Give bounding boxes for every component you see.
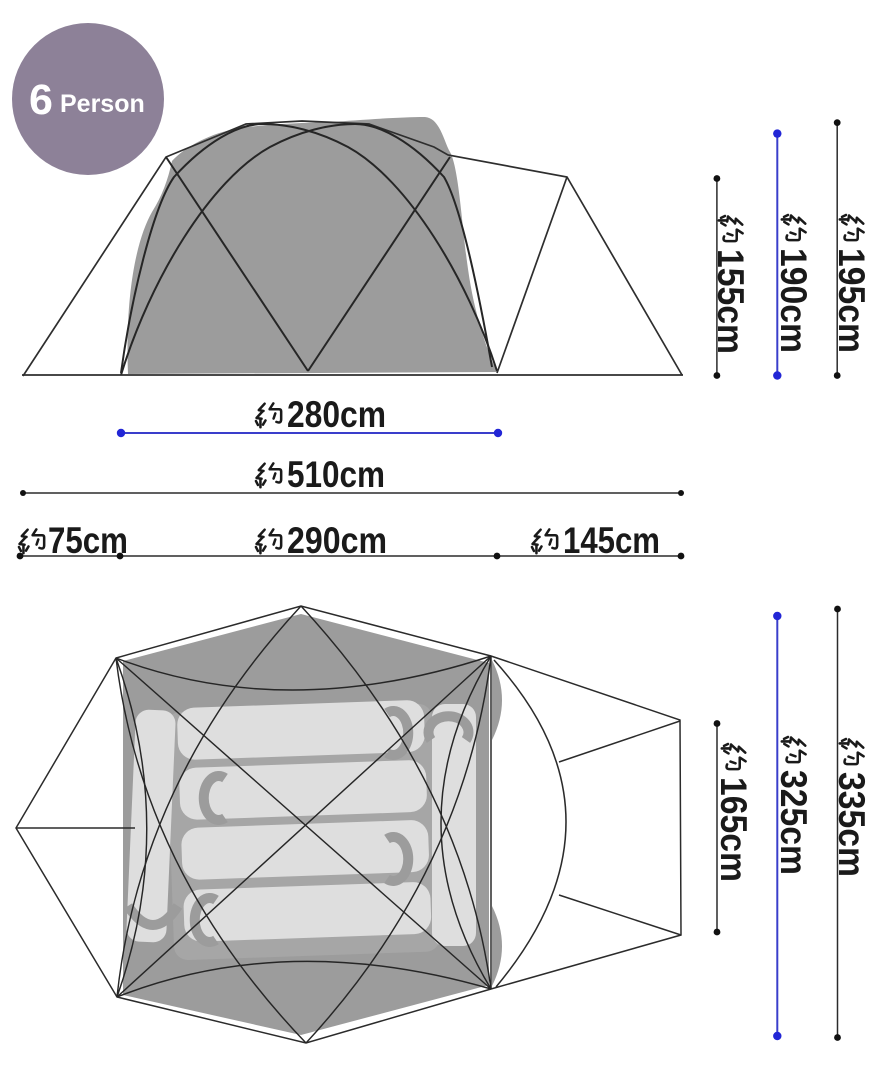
svg-text:335cm: 335cm [831, 772, 872, 877]
svg-text:510cm: 510cm [287, 454, 385, 495]
svg-text:75cm: 75cm [48, 520, 128, 561]
svg-text:145cm: 145cm [563, 520, 660, 561]
svg-text:Person: Person [60, 90, 145, 118]
svg-text:190cm: 190cm [773, 248, 814, 353]
svg-text:290cm: 290cm [287, 520, 387, 561]
svg-text:165cm: 165cm [713, 777, 754, 882]
svg-text:155cm: 155cm [710, 249, 751, 354]
svg-text:325cm: 325cm [773, 770, 814, 875]
svg-text:280cm: 280cm [287, 394, 386, 435]
svg-text:195cm: 195cm [831, 248, 872, 353]
svg-text:6: 6 [29, 76, 53, 124]
